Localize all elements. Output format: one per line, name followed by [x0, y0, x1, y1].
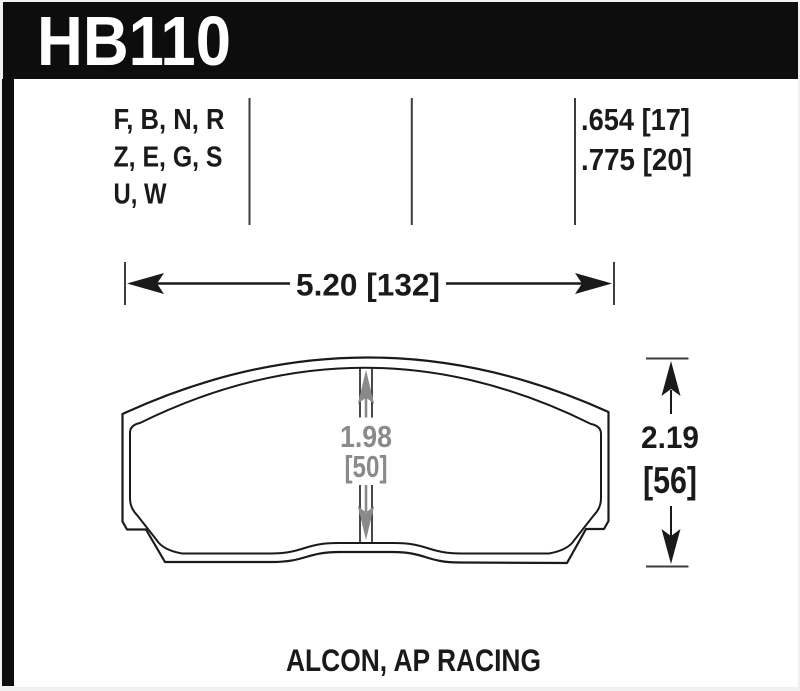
svg-text:F, B, N, R: F, B, N, R	[114, 104, 225, 136]
svg-text:2.19: 2.19	[641, 419, 699, 455]
svg-text:U, W: U, W	[114, 179, 167, 211]
svg-text:[56]: [56]	[643, 460, 697, 501]
svg-text:5.20 [132]: 5.20 [132]	[296, 267, 440, 303]
svg-text:Z, E, G, S: Z, E, G, S	[114, 142, 223, 174]
svg-text:ALCON, AP RACING: ALCON, AP RACING	[286, 642, 541, 678]
svg-text:HB110: HB110	[37, 2, 231, 80]
svg-text:.654 [17]: .654 [17]	[581, 102, 690, 137]
svg-text:[50]: [50]	[345, 449, 388, 484]
svg-text:.775 [20]: .775 [20]	[581, 142, 692, 177]
